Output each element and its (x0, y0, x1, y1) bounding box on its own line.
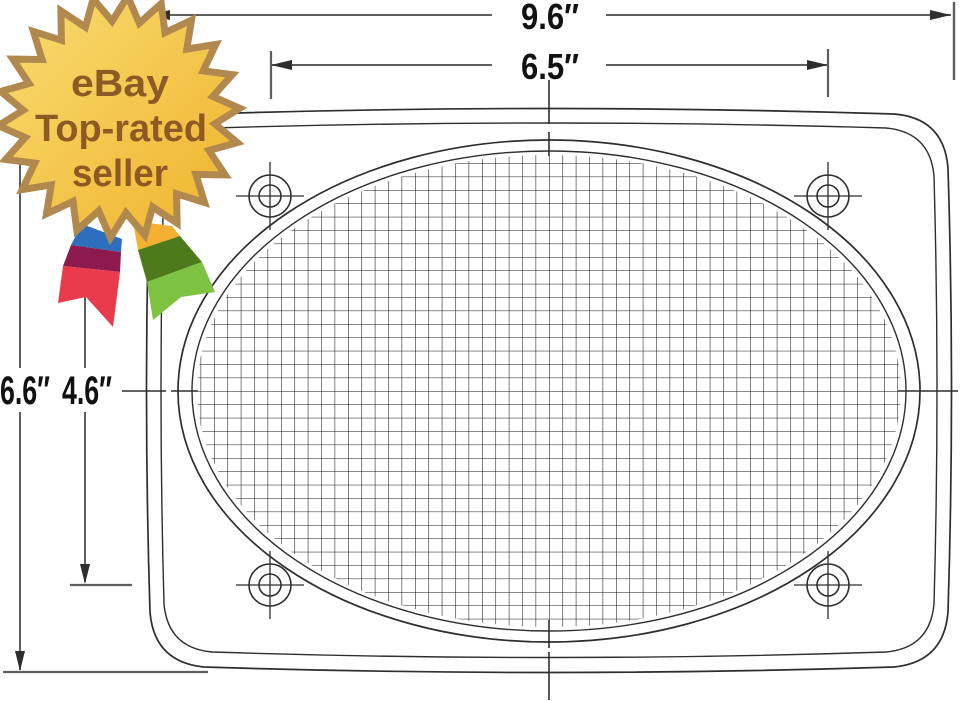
label-hole-width: 6.5″ (521, 46, 579, 87)
label-overall-height: 6.6″ (0, 369, 50, 413)
speaker-grille-diagram: 9.6″ 6.5″ 6.6″ 4.6″ eBay Top-rated selle… (0, 0, 960, 701)
badge-line-2: Top-rated (35, 108, 207, 150)
ebay-top-rated-badge: eBay Top-rated seller (0, 0, 240, 327)
label-hole-height: 4.6″ (62, 369, 112, 413)
ribbon-left-red-stripe (58, 266, 120, 327)
grille-drawing (122, 80, 958, 700)
badge-line-1: eBay (71, 63, 169, 105)
badge-line-3: seller (72, 153, 168, 195)
product-image: 9.6″ 6.5″ 6.6″ 4.6″ eBay Top-rated selle… (0, 0, 960, 701)
label-overall-width: 9.6″ (521, 0, 579, 37)
